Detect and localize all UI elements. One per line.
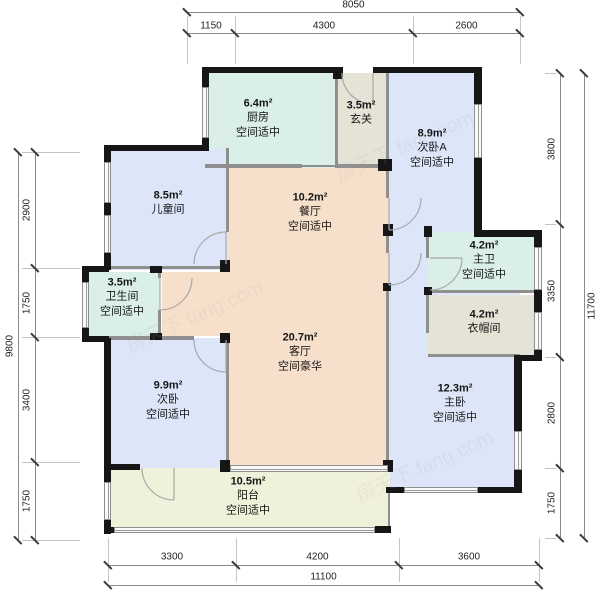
room-living-grade: 空间豪华 [278,359,322,373]
room-kids-room-name: 儿童间 [152,203,185,217]
kids-room-door [194,232,226,264]
room-label-kids-room: 8.5m²儿童间 [152,189,185,218]
room-bathroom-name: 卫生间 [100,290,144,304]
room-bedroom-a-grade: 空间适中 [410,155,454,169]
room-dining-name: 餐厅 [288,205,332,219]
bedroom-2-door [194,340,226,372]
room-label-balcony: 10.5m²阳台空间适中 [226,475,270,518]
room-label-entry: 3.5m²玄关 [347,99,376,128]
room-label-master: 12.3m²主卧空间适中 [433,382,477,425]
room-master-name: 主卧 [433,396,477,410]
room-label-kitchen: 6.4m²厨房空间适中 [236,97,280,140]
room-label-bathroom: 3.5m²卫生间空间适中 [100,276,144,319]
master-bath-door [430,258,462,290]
room-bathroom-grade: 空间适中 [100,304,144,318]
room-label-bedroom-a: 8.9m²次卧A空间适中 [410,127,454,170]
room-bathroom-area: 3.5m² [100,276,144,290]
room-label-dining: 10.2m²餐厅空间适中 [288,191,332,234]
room-master-area: 12.3m² [433,382,477,396]
room-living-area: 20.7m² [278,331,322,345]
master-door [389,253,421,285]
floorplan-stage: 6.4m²厨房空间适中3.5m²玄关8.9m²次卧A空间适中8.5m²儿童间10… [0,0,608,600]
room-cloakroom-area: 4.2m² [468,308,501,322]
room-cloakroom-name: 衣帽间 [468,322,501,336]
room-entry-name: 玄关 [347,113,376,127]
room-kids-room-area: 8.5m² [152,189,185,203]
balcony-door [142,468,174,500]
door-arcs-layer [0,0,608,600]
bedroom-a-door [389,198,421,230]
room-kitchen-area: 6.4m² [236,97,280,111]
room-dining-area: 10.2m² [288,191,332,205]
room-bedroom-a-name: 次卧A [410,141,454,155]
room-bedroom-2-grade: 空间适中 [146,407,190,421]
room-kitchen-grade: 空间适中 [236,125,280,139]
room-master-bath-area: 4.2m² [462,239,506,253]
room-bedroom-a-area: 8.9m² [410,127,454,141]
room-label-living: 20.7m²客厅空间豪华 [278,331,322,374]
room-label-cloakroom: 4.2m²衣帽间 [468,308,501,337]
room-label-bedroom-2: 9.9m²次卧空间适中 [146,379,190,422]
room-master-bath-grade: 空间适中 [462,267,506,281]
room-master-bath-name: 主卫 [462,253,506,267]
bathroom-door [160,278,192,310]
room-label-master-bath: 4.2m²主卫空间适中 [462,239,506,282]
room-bedroom-2-name: 次卧 [146,393,190,407]
room-balcony-area: 10.5m² [226,475,270,489]
room-entry-area: 3.5m² [347,99,376,113]
room-kitchen-name: 厨房 [236,111,280,125]
room-balcony-grade: 空间适中 [226,503,270,517]
room-balcony-name: 阳台 [226,489,270,503]
room-bedroom-2-area: 9.9m² [146,379,190,393]
room-living-name: 客厅 [278,345,322,359]
room-master-grade: 空间适中 [433,410,477,424]
room-dining-grade: 空间适中 [288,219,332,233]
